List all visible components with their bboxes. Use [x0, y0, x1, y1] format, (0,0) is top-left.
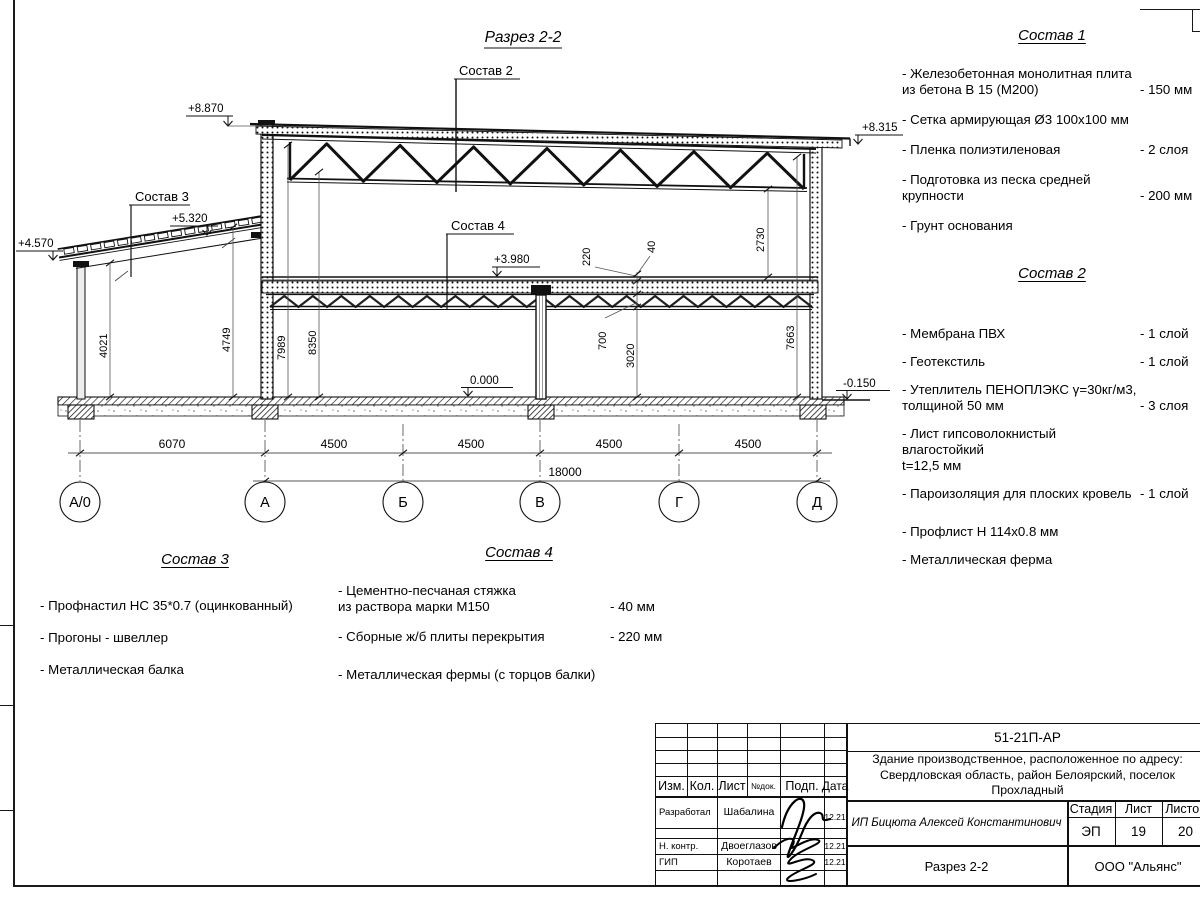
list-item: - Сборные ж/б плиты перекрытия	[338, 629, 610, 645]
axis-a0: А/0	[69, 495, 91, 511]
project-address: Здание производственное, расположенное п…	[846, 751, 1200, 800]
list-item-value: - 1 слой	[1140, 354, 1189, 370]
svg-text:+5.320: +5.320	[172, 213, 208, 225]
list-item-value: - 3 слоя	[1140, 398, 1188, 414]
svg-text:4500: 4500	[596, 437, 623, 451]
col-izm: Изм.	[656, 776, 687, 796]
main-roof	[250, 124, 850, 153]
svg-text:+8.315: +8.315	[862, 122, 898, 134]
signature-ncontrol-gip	[768, 830, 830, 888]
axis-g: Г	[675, 495, 683, 511]
svg-text:7989: 7989	[276, 336, 288, 360]
sostav4-list: Состав 4 - Цементно-песчаная стяжка из р…	[338, 545, 700, 683]
stage-label: Стадия	[1067, 800, 1115, 817]
svg-text:Состав 4: Состав 4	[451, 218, 505, 233]
row-developer-name: Шабалина	[718, 796, 780, 828]
list-item: - Мембрана ПВХ	[902, 326, 1140, 342]
list-item: - Пленка полиэтиленовая	[902, 142, 1140, 158]
elev-zero: 0.000	[461, 375, 513, 396]
elev-ground: -0.150	[836, 378, 890, 399]
axis-bubbles: А/0 А Б В Г Д	[60, 482, 837, 522]
drawing-sheet: { "drawing": { "title": "Разрез 2-2", "c…	[0, 0, 1200, 900]
sheets-label: Листов	[1162, 800, 1200, 817]
list-item: - Грунт основания	[902, 218, 1140, 234]
elev-floor2: +3.980	[492, 254, 540, 276]
col-list: Лист	[717, 776, 747, 796]
bottom-dimensions: 6070 4500 4500 4500 4500 18000	[68, 437, 832, 484]
row-developer-role: Разработал	[657, 796, 719, 828]
callout-roof: Состав 2	[454, 63, 520, 192]
axis-b: Б	[398, 495, 408, 511]
customer: ИП Бицюта Алексей Константинович	[846, 800, 1067, 845]
list-item: - Подготовка из песка средней крупности	[902, 172, 1140, 204]
sheets-value: 20	[1162, 817, 1200, 845]
elev-roof-left: +8.870	[186, 103, 258, 126]
row-gip-role: ГИП	[657, 854, 719, 870]
axis-d: Д	[812, 495, 822, 511]
svg-text:700: 700	[597, 332, 609, 350]
axis-a: А	[260, 495, 270, 511]
list-item: - Железобетонная монолитная плита из бет…	[902, 66, 1140, 98]
svg-text:4749: 4749	[221, 328, 233, 352]
list-item: - Геотекстиль	[902, 354, 1140, 370]
svg-text:Состав 3: Состав 3	[135, 189, 189, 204]
col-kol: Кол.	[687, 776, 717, 796]
main-building	[250, 120, 870, 400]
list-item: - Прогоны - швеллер	[40, 630, 168, 646]
svg-text:4500: 4500	[458, 437, 485, 451]
sostav3-title: Состав 3	[40, 552, 350, 570]
list-item-value: - 200 мм	[1140, 188, 1192, 204]
svg-text:2730: 2730	[755, 228, 767, 252]
annex-wall-cap	[73, 261, 89, 267]
svg-text:8350: 8350	[307, 331, 319, 355]
svg-text:220: 220	[581, 248, 593, 266]
annex-roof	[58, 216, 268, 271]
svg-text:7663: 7663	[785, 326, 797, 350]
list-item: - Утеплитель ПЕНОПЛЭКС γ=30кг/м3, толщин…	[902, 382, 1140, 414]
sostav1-title: Состав 1	[902, 28, 1200, 46]
list-item: - Лист гипсоволокнистый влагостойкий t=1…	[902, 426, 1140, 474]
svg-text:6070: 6070	[159, 437, 186, 451]
sheet-value: 19	[1115, 817, 1162, 845]
svg-text:4500: 4500	[735, 437, 762, 451]
svg-text:-0.150: -0.150	[843, 378, 876, 390]
annex-roof-bearing	[251, 232, 262, 238]
svg-text:4021: 4021	[98, 334, 110, 358]
company-name: ООО "Альянс"	[1067, 845, 1200, 887]
list-item: - Пароизоляция для плоских кровель	[902, 486, 1140, 502]
sheet-label: Лист	[1115, 800, 1162, 817]
svg-text:Состав 2: Состав 2	[459, 63, 513, 78]
sostav3-list: Состав 3 - Профнастил НС 35*0.7 (оцинков…	[40, 552, 350, 678]
svg-text:18000: 18000	[548, 465, 582, 479]
stage-value: ЭП	[1067, 817, 1115, 845]
elev-roof-right: +8.315	[854, 122, 904, 144]
sostav2-title: Состав 2	[902, 266, 1200, 284]
floor-slab	[58, 397, 844, 416]
list-item: - Цементно-песчаная стяжка из раствора м…	[338, 583, 610, 615]
list-item: - Профлист Н 114х0.8 мм	[902, 524, 1140, 540]
frame-tick-2	[0, 705, 13, 706]
roof-truss	[287, 142, 807, 192]
sostav4-title: Состав 4	[338, 545, 700, 563]
list-item-value: - 1 слой	[1140, 326, 1189, 342]
elev-annex-left: +4.570	[16, 238, 63, 260]
list-item: - Профнастил НС 35*0.7 (оцинкованный)	[40, 598, 293, 614]
list-item-value: - 1 слой	[1140, 486, 1189, 502]
callouts: Состав 2 Состав 3 Состав 4	[129, 63, 520, 309]
frame-tick-3	[0, 810, 13, 811]
svg-text:40: 40	[646, 241, 658, 253]
annex-wall	[77, 266, 85, 399]
list-item-value: - 150 мм	[1140, 82, 1192, 98]
title-block: Изм. Кол. Лист №док. Подп. Дата Разработ…	[655, 723, 1200, 886]
list-item-value: - 40 мм	[610, 599, 655, 615]
doc-code: 51-21П-АР	[846, 724, 1200, 751]
doc-sheet-title: Разрез 2-2	[846, 845, 1067, 887]
list-item: - Металлическая ферма	[902, 552, 1140, 568]
list-item-value: - 2 слоя	[1140, 142, 1188, 158]
frame-tick-1	[0, 625, 13, 626]
svg-text:0.000: 0.000	[470, 375, 499, 387]
drawing-title: Разрез 2-2	[485, 29, 562, 46]
svg-text:+4.570: +4.570	[18, 238, 54, 250]
sostav1-list: Состав 1 - Железобетонная монолитная пли…	[902, 28, 1200, 234]
sostav2-list: Состав 2 - Мембрана ПВХ- 1 слой - Геотек…	[902, 266, 1200, 568]
row-ncontrol-role: Н. контр.	[657, 838, 719, 854]
wall-axis-a	[261, 124, 273, 399]
axis-v: В	[535, 495, 545, 511]
list-item: - Металлическая балка	[40, 662, 184, 678]
axis-lines	[80, 420, 817, 481]
svg-text:+8.870: +8.870	[188, 103, 224, 115]
list-item: - Металлическая фермы (с торцов балки)	[338, 667, 610, 683]
annex	[58, 216, 268, 399]
wall-axis-d	[810, 145, 822, 399]
svg-text:4500: 4500	[321, 437, 348, 451]
list-item: - Сетка армирующая Ø3 100х100 мм	[902, 112, 1140, 128]
svg-text:+3.980: +3.980	[494, 254, 530, 266]
vertical-dimensions: 4021 4749 7989 8350 2730 220 40 700 3020…	[98, 142, 801, 400]
svg-text:3020: 3020	[625, 344, 637, 368]
list-item-value: - 220 мм	[610, 629, 662, 645]
